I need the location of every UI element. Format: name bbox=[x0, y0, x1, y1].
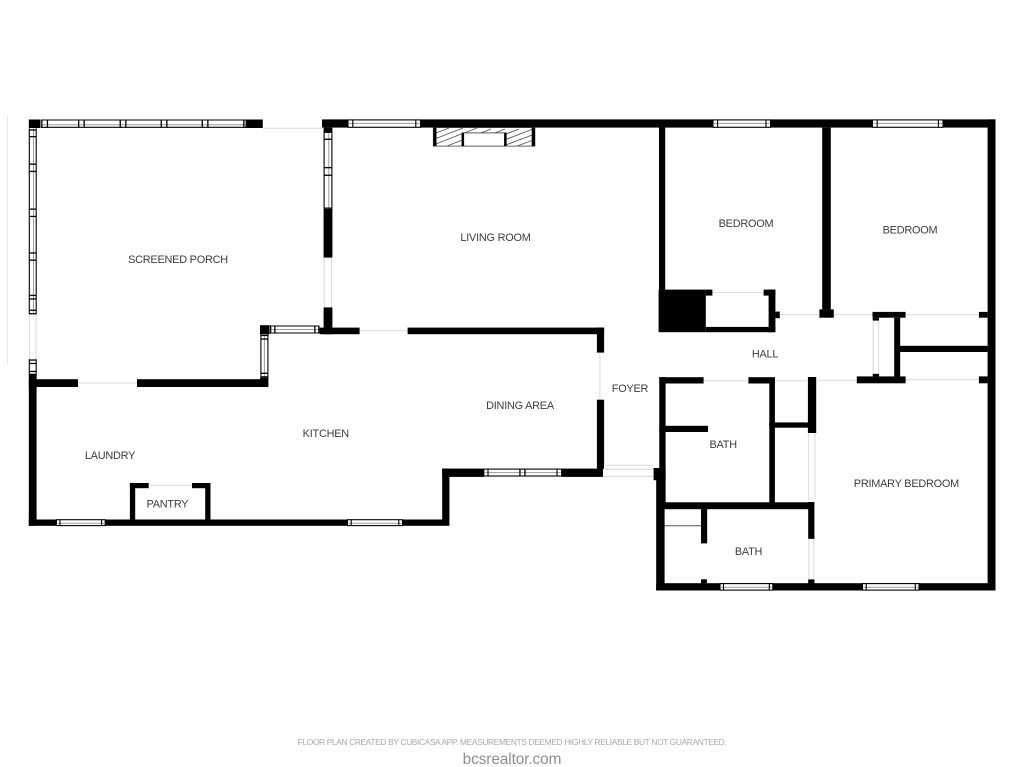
svg-text:SCREENED PORCH: SCREENED PORCH bbox=[128, 254, 228, 266]
svg-text:LAUNDRY: LAUNDRY bbox=[85, 450, 136, 462]
svg-text:bcsrealtor.com: bcsrealtor.com bbox=[463, 751, 562, 767]
svg-text:BATH: BATH bbox=[735, 546, 762, 558]
svg-text:PRIMARY BEDROOM: PRIMARY BEDROOM bbox=[854, 478, 959, 490]
svg-text:KITCHEN: KITCHEN bbox=[303, 428, 349, 440]
svg-text:HALL: HALL bbox=[752, 349, 779, 361]
svg-text:FOYER: FOYER bbox=[612, 383, 649, 395]
svg-text:BATH: BATH bbox=[710, 439, 737, 451]
svg-text:DINING AREA: DINING AREA bbox=[486, 400, 555, 412]
svg-text:BEDROOM: BEDROOM bbox=[883, 224, 938, 236]
svg-text:PANTRY: PANTRY bbox=[146, 499, 189, 511]
svg-text:BEDROOM: BEDROOM bbox=[719, 218, 774, 230]
svg-text:FLOOR PLAN CREATED BY CUBICASA: FLOOR PLAN CREATED BY CUBICASA APP. MEAS… bbox=[298, 737, 727, 747]
svg-text:LIVING ROOM: LIVING ROOM bbox=[460, 232, 530, 244]
